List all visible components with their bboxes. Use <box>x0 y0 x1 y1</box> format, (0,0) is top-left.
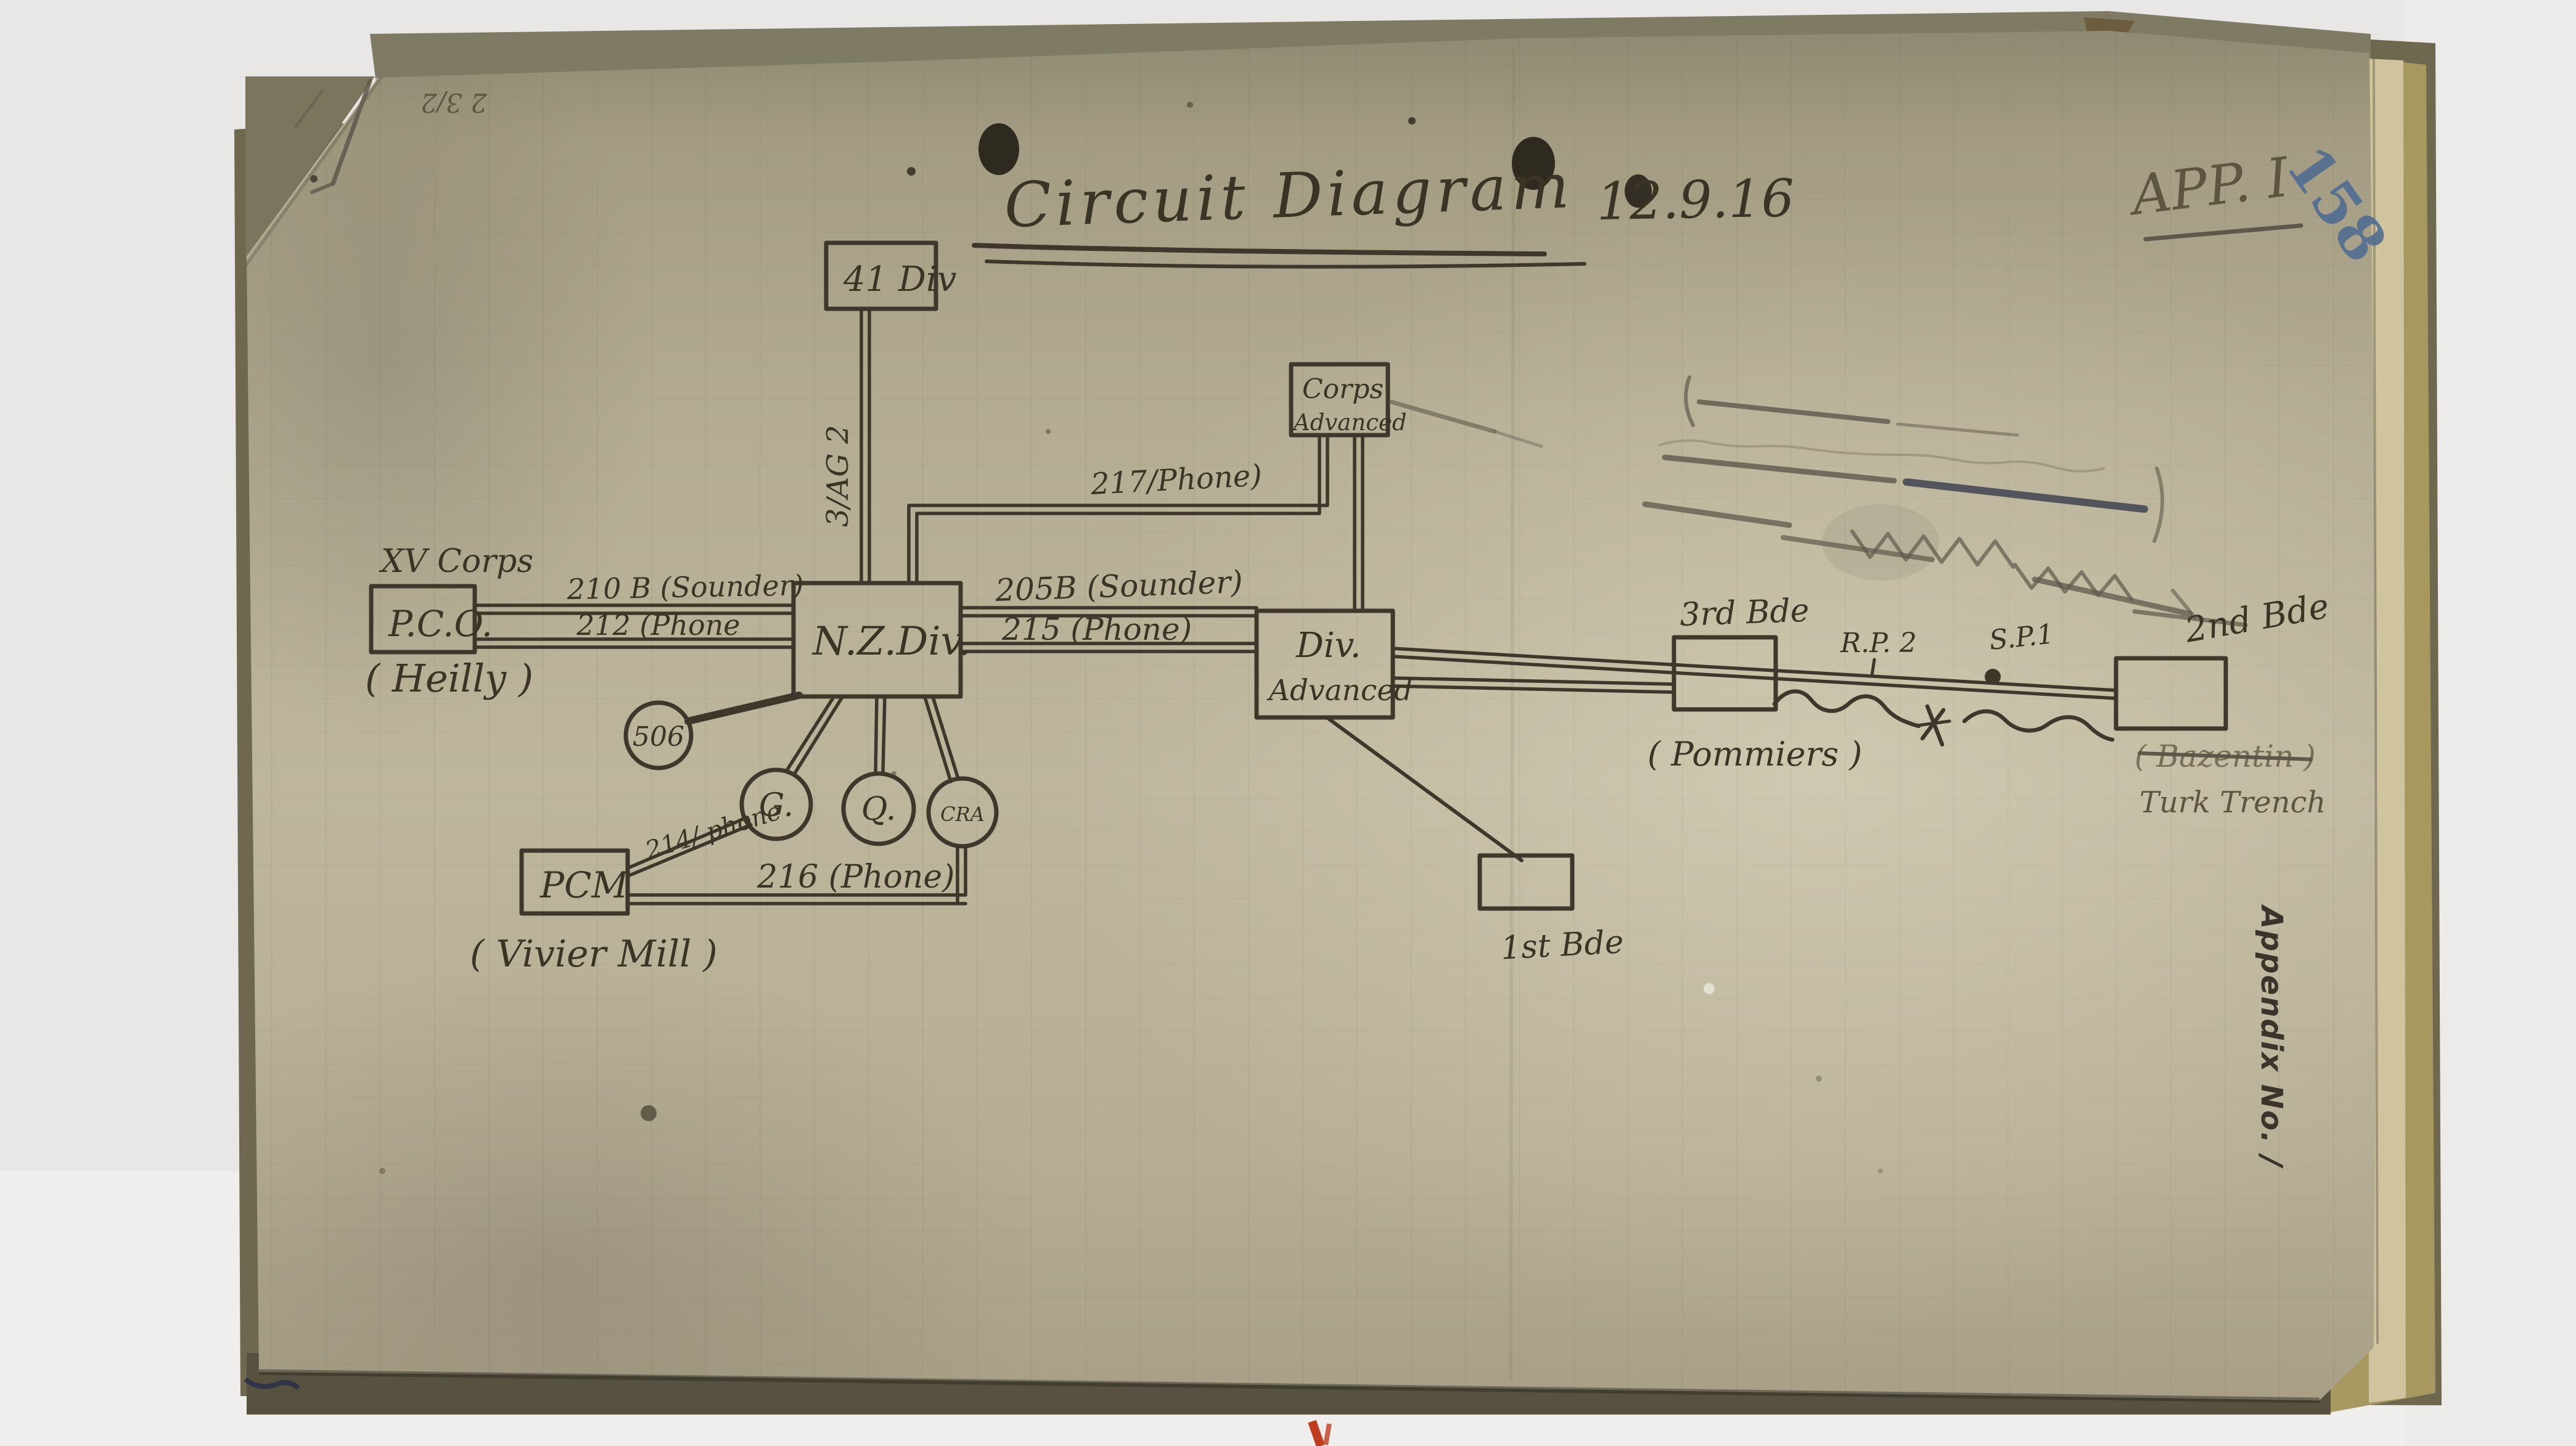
label-nz-div: N.Z.Div. <box>811 619 971 664</box>
label-heilly: ( Heilly ) <box>365 656 533 701</box>
label-216: 216 (Phone) <box>757 859 954 896</box>
label-3ag2: 3/AG 2 <box>821 425 855 527</box>
label-turk-trench: Turk Trench <box>2139 785 2326 820</box>
label-3rd-bde: 3rd Bde <box>1679 592 1810 634</box>
label-212: 212 (Phone <box>576 608 740 642</box>
photo-of-circuit-diagram: Circuit Diagram 12.9.16 APP. I 158 2 3/2… <box>0 0 2576 1446</box>
scene: Circuit Diagram 12.9.16 APP. I 158 2 3/2… <box>0 0 2576 1446</box>
label-vivier-mill: ( Vivier Mill ) <box>470 933 718 976</box>
label-div-advanced-2: Advanced <box>1266 674 1413 708</box>
label-pcm: PCM <box>539 864 629 906</box>
date: 12.9.16 <box>1596 168 1795 232</box>
label-215: 215 (Phone) <box>1001 611 1192 647</box>
label-q: Q. <box>861 791 896 828</box>
label-1st-bde: 1st Bde <box>1500 924 1625 967</box>
margin-appendix-note: Appendix No. / <box>2254 904 2289 1169</box>
sp1-dot <box>1985 669 2001 685</box>
label-div-advanced-1: Div. <box>1295 626 1361 666</box>
label-corps-advanced-2: Advanced <box>1292 409 1407 436</box>
label-pommiers: ( Pommiers ) <box>1647 735 1862 774</box>
corner-mark-text: 2 3/2 <box>420 88 488 118</box>
label-506: 506 <box>633 721 684 753</box>
label-210b: 210 B (Sounder) <box>566 568 804 606</box>
label-pco: P.C.O. <box>388 603 493 645</box>
label-cra: CRA <box>940 803 985 826</box>
label-xv-corps: XV Corps <box>379 543 533 580</box>
label-41-div: 41 Div <box>843 259 957 300</box>
label-rp2: R.P. 2 <box>1840 627 1917 659</box>
label-corps-advanced-1: Corps <box>1302 374 1384 405</box>
label-bazentin-struck: ( Bazentin ) <box>2135 738 2316 774</box>
line-nz-q <box>876 697 877 773</box>
